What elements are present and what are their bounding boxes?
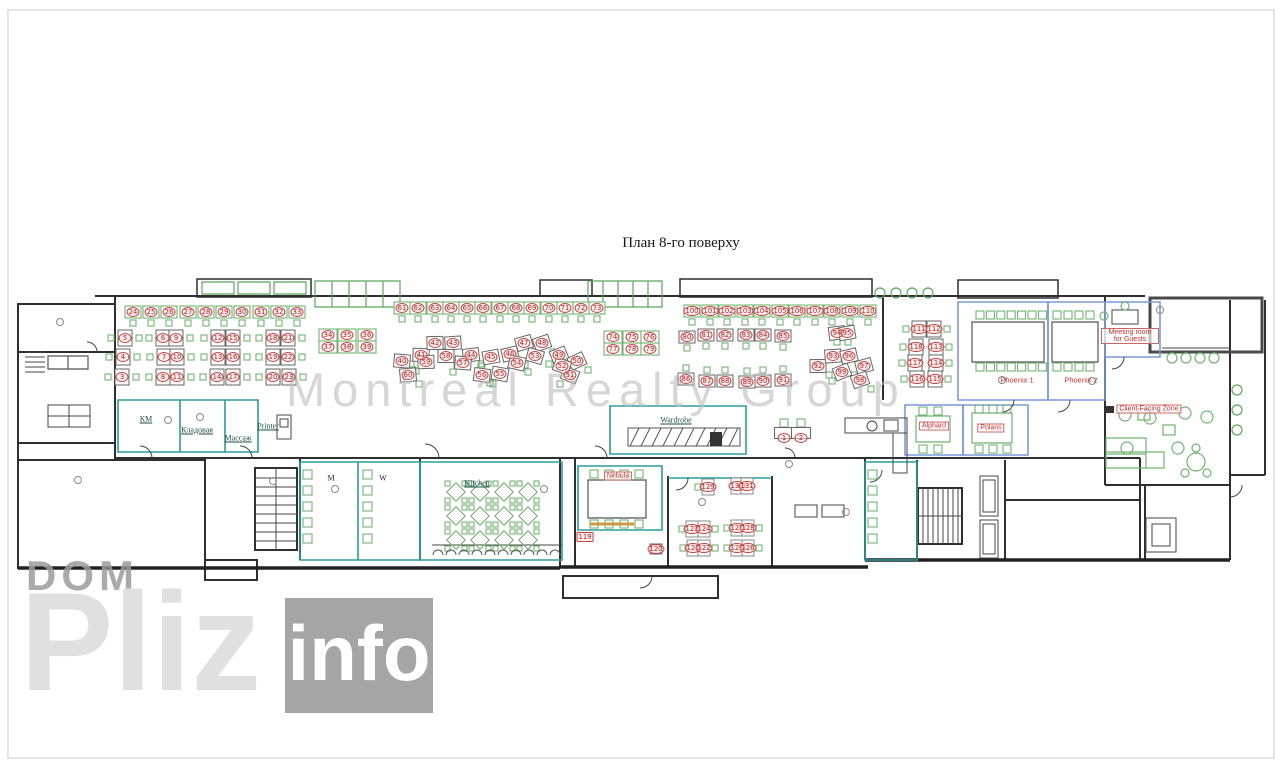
desk-number-badge: 27: [182, 307, 195, 317]
desk-number-badge: 63: [429, 303, 442, 313]
desk-number-badge: 45: [485, 352, 498, 362]
watermark-info-block: info: [285, 598, 433, 713]
desk-number-badge: 97: [858, 361, 871, 371]
desk-number-badge: 60: [402, 370, 415, 380]
desk-number-badge: 10: [171, 352, 184, 362]
desk-number-badge: 21: [282, 333, 295, 343]
desk-number-badge: 114: [928, 358, 945, 368]
desk-number-badge: 36: [361, 330, 374, 340]
desk-number-badge: 92: [812, 361, 825, 371]
desk-number-badge: 85: [777, 331, 790, 341]
desk-number-badge: 58: [440, 351, 453, 361]
desk-number-badge: 1: [778, 433, 791, 443]
desk-number-badge: 129: [700, 482, 717, 492]
desk-number-badge: 39: [361, 342, 374, 352]
room-label: Alphard: [919, 422, 949, 431]
desk-number-badge: 51: [564, 370, 577, 380]
desk-number-badge: 101: [702, 306, 719, 316]
desk-number-badge: 86: [680, 374, 693, 384]
tv-icon: [1104, 406, 1114, 413]
desk-number-badge: 93: [827, 351, 840, 361]
desk-number-badge: 117: [907, 358, 924, 368]
desk-number-badge: 84: [757, 330, 770, 340]
desk-number-badge: 128: [740, 523, 757, 533]
room-label: Wardrobe: [660, 416, 691, 425]
desk-number-badge: 71: [559, 303, 572, 313]
desk-number-badge: 57: [457, 358, 470, 368]
desk-number-badge: 26: [163, 307, 176, 317]
wardrobe-counter: [628, 428, 740, 446]
plan-title: План 8-го поверху: [622, 235, 739, 252]
watermark-montreal: Montreal Realty Group: [286, 362, 906, 417]
room-label: W: [379, 474, 387, 483]
desk-number-badge: 33: [291, 307, 304, 317]
desk-number-badge: 61: [396, 303, 409, 313]
desk-number-badge: 17: [227, 372, 240, 382]
desk-number-badge: 2: [795, 433, 808, 443]
desk-number-badge: 64: [445, 303, 458, 313]
desk-number-badge: 109: [842, 306, 859, 316]
desk-number-badge: 69: [526, 303, 539, 313]
desk-number-badge: 11: [171, 372, 184, 382]
desk-number-badge: 122: [696, 543, 713, 553]
floor-plan-canvas: План 8-го поверху Montreal Realty Group …: [0, 0, 1282, 768]
desk-number-badge: 68: [510, 303, 523, 313]
desk-number-badge: 98: [854, 375, 867, 385]
desk-number-badge: 81: [700, 330, 713, 340]
desk-number-badge: 3: [116, 372, 129, 382]
desk-number-badge: 96: [843, 351, 856, 361]
room-label: Nebula: [604, 472, 632, 481]
desk-number-badge: 100: [684, 306, 701, 316]
desk-number-badge: 108: [824, 306, 841, 316]
desk-number-badge: 13: [212, 352, 225, 362]
desk-number-badge: 80: [681, 332, 694, 342]
room-label: Кладовая: [181, 426, 213, 435]
desk-number-badge: 74: [607, 332, 620, 342]
desk-number-badge: 25: [145, 307, 158, 317]
desk-number-badge: 89: [741, 377, 754, 387]
room-label: Polaris: [977, 424, 1004, 433]
desk-number-badge: 32: [273, 307, 286, 317]
room-label: КМ: [140, 415, 152, 424]
room-label: Client-Facing Zone: [1116, 405, 1181, 414]
desk-number-badge: 88: [719, 376, 732, 386]
desk-number-badge: 76: [644, 332, 657, 342]
desk-number-badge: 119: [577, 532, 594, 542]
desk-number-badge: 15: [227, 333, 240, 343]
desk-number-badge: 54: [511, 358, 524, 368]
desk-number-badge: 120: [648, 544, 665, 554]
desk-number-badge: 42: [429, 338, 442, 348]
desk-number-badge: 105: [772, 306, 789, 316]
desk-number-badge: 126: [740, 543, 757, 553]
desk-number-badge: 55: [494, 369, 507, 379]
desk-number-badge: 6: [157, 333, 170, 343]
room-label: Kitchen: [464, 479, 489, 488]
desk-number-badge: 83: [740, 330, 753, 340]
desk-number-badge: 56: [476, 370, 489, 380]
desk-number-badge: 112: [926, 324, 943, 334]
desk-number-badge: 14: [211, 372, 224, 382]
desk-number-badge: 67: [494, 303, 507, 313]
desk-number-badge: 82: [719, 330, 732, 340]
desk-number-badge: 79: [644, 344, 657, 354]
desk-number-badge: 91: [777, 375, 790, 385]
room-label: Phoenix 1: [1000, 376, 1033, 385]
green-furniture: [916, 302, 1219, 477]
room-label: Printer: [257, 422, 279, 431]
room-label: Phoenix 2: [1064, 376, 1097, 385]
desk-number-badge: 8: [157, 372, 170, 382]
desk-number-badge: 95: [841, 328, 854, 338]
desk-number-badge: 12: [212, 333, 225, 343]
room-label: Массаж: [225, 434, 252, 443]
desk-number-badge: 29: [218, 307, 231, 317]
desk-number-badge: 28: [200, 307, 213, 317]
desk-number-badge: 19: [267, 352, 280, 362]
desk-number-badge: 22: [282, 352, 295, 362]
desk-number-badge: 115: [927, 374, 944, 384]
desk-number-badge: 48: [536, 338, 549, 348]
desk-number-badge: 24: [127, 307, 140, 317]
desk-number-badge: 73: [591, 303, 604, 313]
desk-number-badge: 110: [860, 306, 877, 316]
desk-number-badge: 52: [556, 361, 569, 371]
room-label: Meeting room for Guests: [1101, 328, 1159, 344]
desk-number-badge: 40: [396, 356, 409, 366]
desk-number-badge: 7: [158, 352, 171, 362]
desk-number-badge: 59: [420, 357, 433, 367]
desk-number-badge: 131: [739, 481, 756, 491]
watermark-info-text: info: [288, 614, 431, 692]
desk-number-badge: 37: [322, 342, 335, 352]
desk-number-badge: 49: [553, 350, 566, 360]
desk-number-badge: 104: [754, 306, 771, 316]
desk-number-badge: 20: [267, 372, 280, 382]
desk-number-badge: 18: [267, 333, 280, 343]
desk-number-badge: 47: [518, 338, 531, 348]
desk-number-badge: 90: [757, 376, 770, 386]
desk-number-badge: 75: [626, 332, 639, 342]
desk-number-badge: 116: [909, 374, 926, 384]
desk-number-badge: 102: [719, 306, 736, 316]
desk-number-badge: 65: [461, 303, 474, 313]
desk-number-badge: 99: [836, 367, 849, 377]
desk-number-badge: 107: [807, 306, 824, 316]
top-right-room: [1150, 298, 1262, 352]
desk-number-badge: 4: [117, 352, 130, 362]
desk-number-badge: 62: [412, 303, 425, 313]
desk-number-badge: 103: [737, 306, 754, 316]
desk-number-badge: 50: [571, 356, 584, 366]
desk-number-badge: 124: [696, 524, 713, 534]
desk-number-badge: 53: [529, 351, 542, 361]
desk-number-badge: 23: [283, 372, 296, 382]
turnstile: [710, 432, 722, 446]
desk-number-badge: 31: [255, 307, 268, 317]
desk-number-badge: 34: [322, 330, 335, 340]
desk-number-badge: 106: [789, 306, 806, 316]
desk-number-badge: 30: [236, 307, 249, 317]
desk-number-badge: 5: [119, 333, 132, 343]
desk-number-badge: 70: [543, 303, 556, 313]
desk-number-badge: 87: [701, 376, 714, 386]
desk-number-badge: 118: [908, 342, 925, 352]
watermark-pliz: Pliz: [20, 572, 261, 712]
desk-number-badge: 113: [928, 342, 945, 352]
desk-number-badge: 43: [447, 338, 460, 348]
desk-number-badge: 78: [626, 344, 639, 354]
desk-number-badge: 35: [341, 330, 354, 340]
desk-number-badge: 9: [170, 333, 183, 343]
desk-number-badge: 72: [575, 303, 588, 313]
room-label: M: [327, 474, 334, 483]
desk-number-badge: 16: [227, 352, 240, 362]
desk-number-badge: 77: [607, 344, 620, 354]
desk-number-badge: 38: [341, 342, 354, 352]
desk-number-badge: 66: [477, 303, 490, 313]
